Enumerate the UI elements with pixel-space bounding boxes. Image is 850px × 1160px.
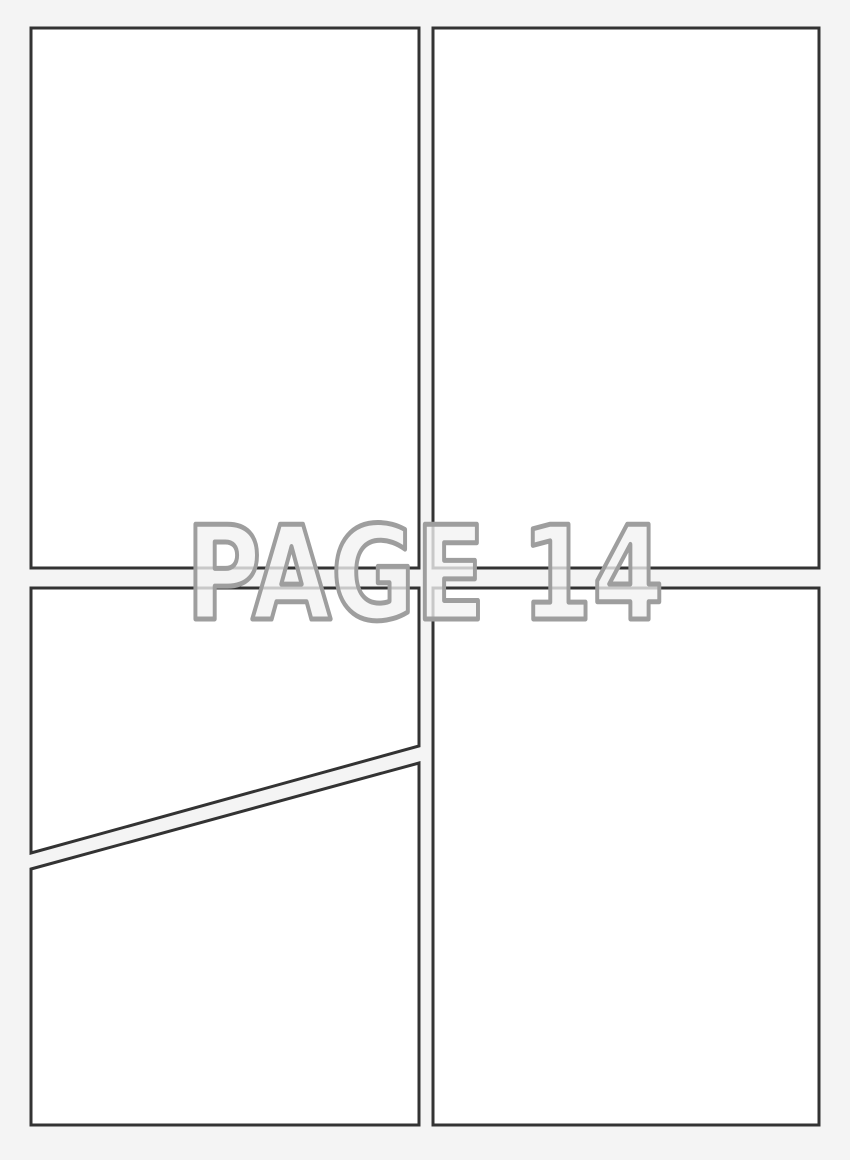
panel-top-left [31, 28, 419, 568]
panel-bottom-right [433, 588, 819, 1125]
comic-page-template: PAGE 14 [0, 0, 850, 1160]
page-number-label: PAGE 14 [186, 498, 664, 650]
comic-page-canvas: PAGE 14 [0, 0, 850, 1160]
panel-top-right [433, 28, 819, 568]
